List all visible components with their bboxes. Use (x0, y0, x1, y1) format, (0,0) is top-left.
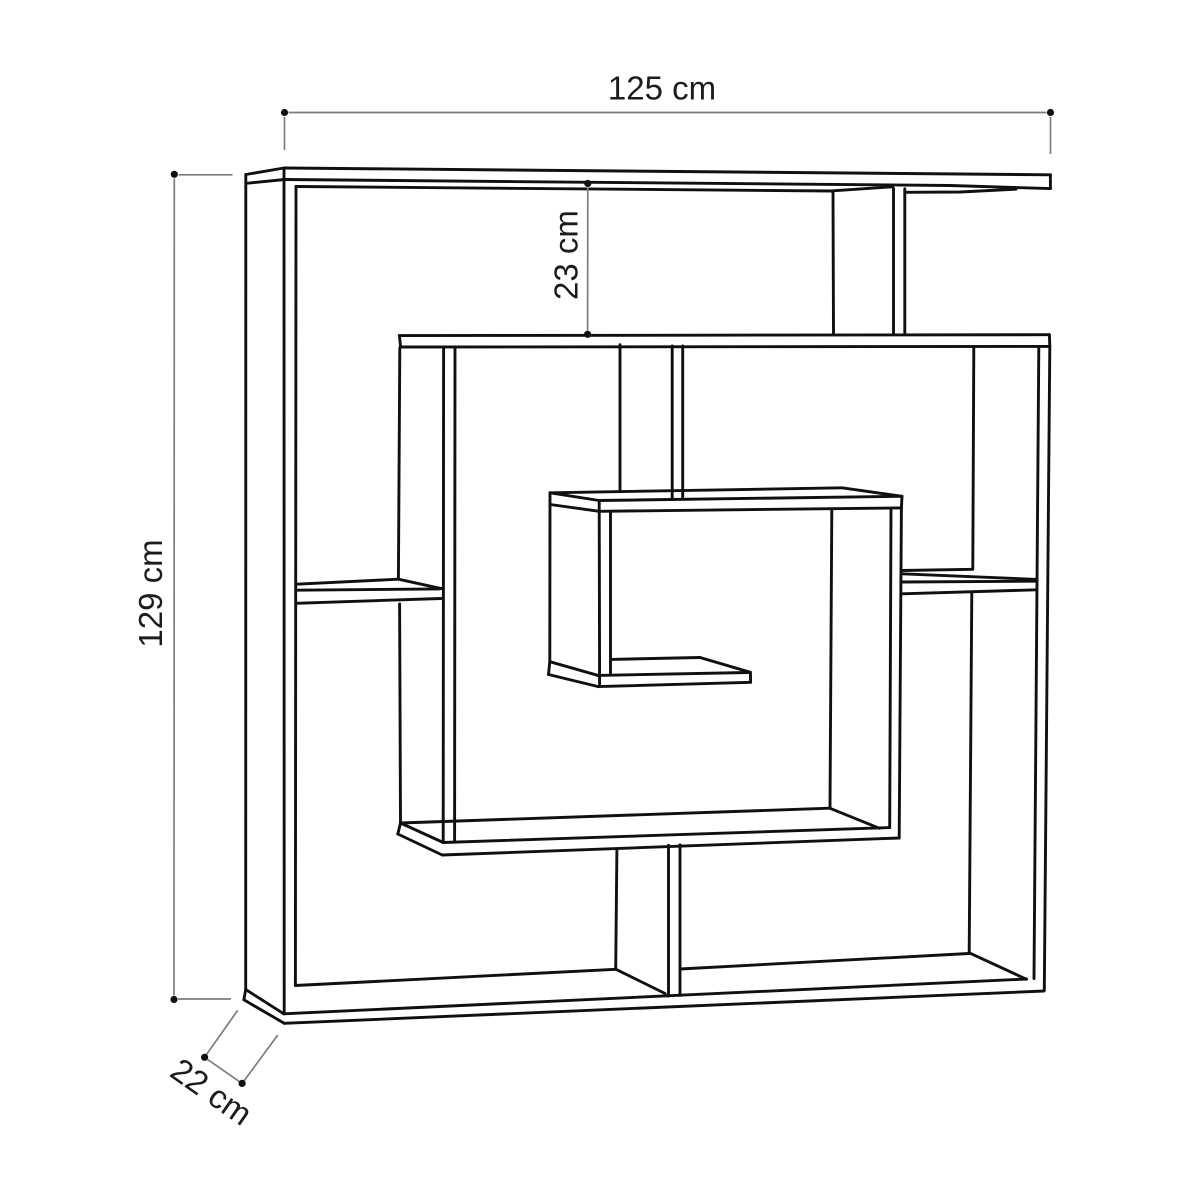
svg-text:23 cm: 23 cm (548, 210, 585, 300)
svg-text:129 cm: 129 cm (132, 539, 169, 647)
svg-text:125 cm: 125 cm (608, 69, 716, 106)
